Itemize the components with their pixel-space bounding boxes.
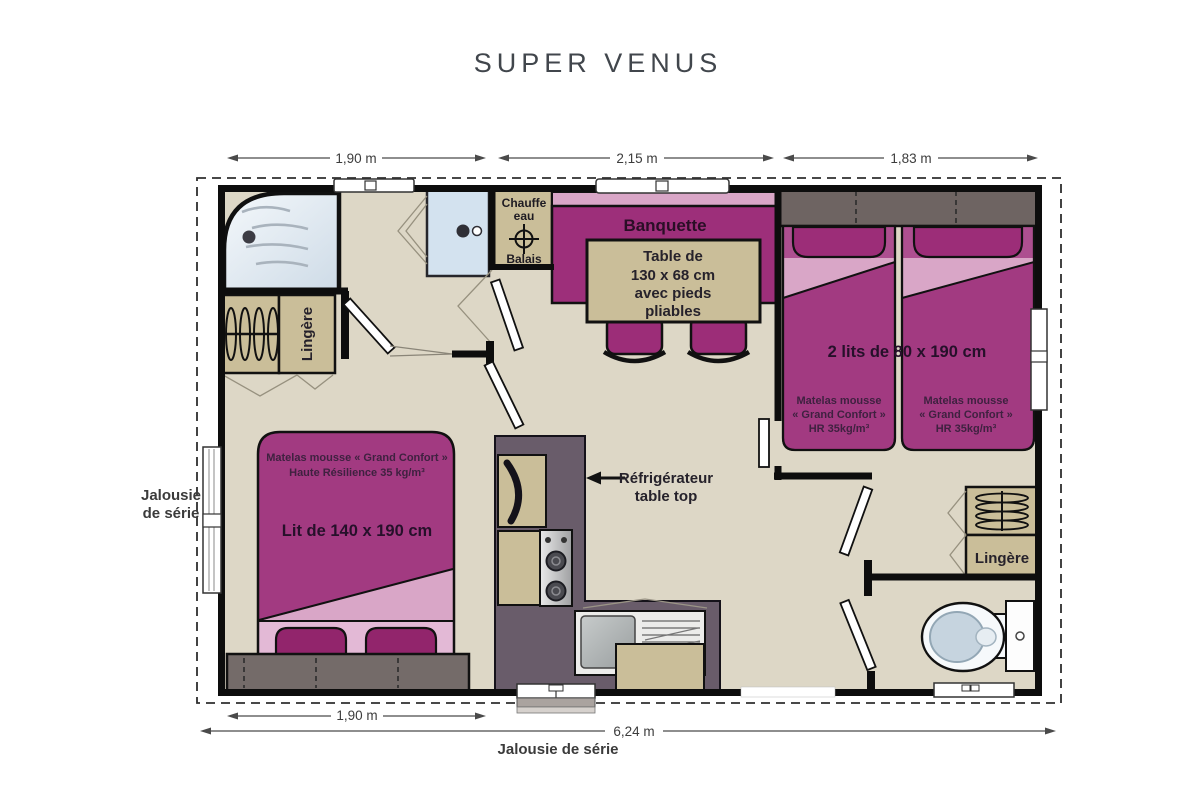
stool bbox=[688, 317, 749, 361]
entrance-door bbox=[517, 684, 595, 713]
master-headboard bbox=[227, 654, 469, 692]
dim-top-right: 1,83 m bbox=[890, 151, 931, 166]
master-mattress-label-1: Matelas mousse « Grand Confort » bbox=[266, 452, 448, 464]
floorplan-page: SUPER VENUS Lingère bbox=[0, 0, 1200, 800]
toilet-icon bbox=[922, 601, 1034, 671]
twin-mattress-label-3: HR 35kg/m³ bbox=[809, 423, 870, 435]
twin-mattress-label-2: « Grand Confort » bbox=[919, 409, 1013, 421]
dim-bottom-left: 1,90 m bbox=[336, 708, 377, 723]
single-bed: Matelas mousse « Grand Confort » HR 35kg… bbox=[783, 226, 895, 450]
single-bed: Matelas mousse « Grand Confort » HR 35kg… bbox=[902, 226, 1034, 450]
utility-label-3: Balais bbox=[506, 252, 542, 266]
utility-label-2: eau bbox=[514, 209, 535, 223]
double-bed: Matelas mousse « Grand Confort » Haute R… bbox=[258, 432, 454, 659]
utility-label-1: Chauffe bbox=[502, 196, 547, 210]
twin-mattress-label-2: « Grand Confort » bbox=[792, 409, 886, 421]
master-bed-label: Lit de 140 x 190 cm bbox=[282, 522, 432, 540]
twin-headboard bbox=[780, 188, 1038, 226]
jalousie-left-label-1: Jalousie bbox=[141, 487, 201, 504]
dim-top-left: 1,90 m bbox=[335, 151, 376, 166]
entrance-step bbox=[517, 698, 595, 707]
stool bbox=[604, 317, 665, 361]
stove-icon bbox=[540, 530, 572, 606]
table-label-1: Table de bbox=[643, 248, 703, 265]
twin-mattress-label-1: Matelas mousse bbox=[797, 395, 882, 407]
master-mattress-label-2: Haute Résilience 35 kg/m³ bbox=[289, 467, 425, 479]
opening-bottom bbox=[741, 687, 835, 697]
twin-mattress-label-1: Matelas mousse bbox=[924, 395, 1009, 407]
dim-bottom-total: 6,24 m bbox=[613, 724, 654, 739]
wardrobe-right-label: Lingère bbox=[975, 550, 1029, 567]
table-label-2: 130 x 68 cm bbox=[631, 267, 715, 284]
dim-top-middle: 2,15 m bbox=[616, 151, 657, 166]
jalousie-left-label-2: de série bbox=[143, 505, 200, 522]
page-title: SUPER VENUS bbox=[474, 48, 723, 78]
wardrobe-bath-label: Lingère bbox=[299, 307, 316, 361]
fridge-label-1: Réfrigérateur bbox=[619, 470, 713, 487]
fridge-label-2: table top bbox=[635, 488, 698, 505]
banquette-label: Banquette bbox=[623, 216, 706, 235]
twin-beds-label: 2 lits de 80 x 190 cm bbox=[828, 343, 987, 361]
twin-mattress-label-3: HR 35kg/m³ bbox=[936, 423, 997, 435]
folding-table: Table de 130 x 68 cm avec pieds pliables bbox=[587, 240, 760, 322]
table-label-4: pliables bbox=[645, 303, 701, 320]
floorplan-svg: SUPER VENUS Lingère bbox=[0, 0, 1200, 800]
table-label-3: avec pieds bbox=[635, 285, 712, 302]
jalousie-bottom-label: Jalousie de série bbox=[498, 741, 619, 758]
door-leaf-twin bbox=[759, 419, 769, 467]
shower-icon bbox=[224, 193, 339, 290]
